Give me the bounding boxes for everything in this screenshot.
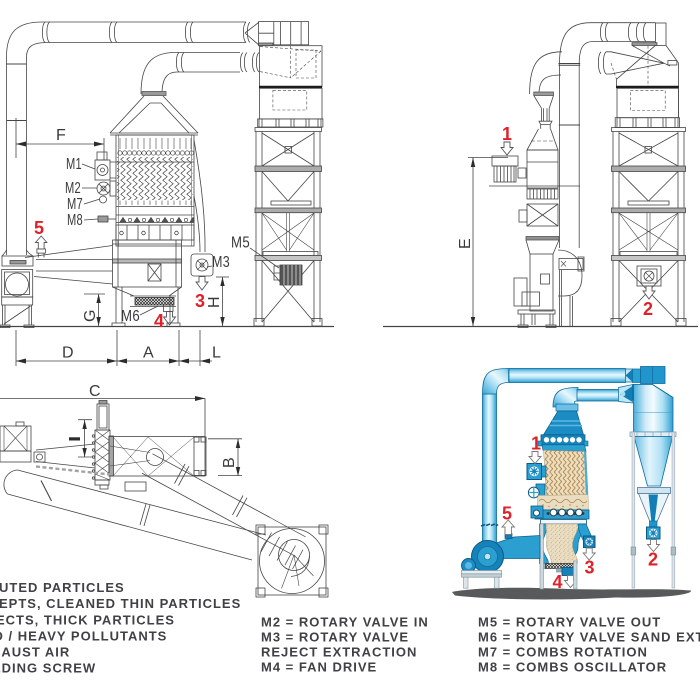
svg-text:M3: M3 [212,254,230,271]
svg-text:H: H [206,296,223,308]
svg-text:1: 1 [502,124,512,144]
svg-text:M6 = ROTARY VALVE SAND EXTRACT: M6 = ROTARY VALVE SAND EXTRACTION [478,630,700,645]
svg-text:EPTS, CLEANED THIN PARTICLES: EPTS, CLEANED THIN PARTICLES [0,596,241,611]
svg-text:REJECT EXTRACTION: REJECT EXTRACTION [261,645,417,660]
svg-text:D / HEAVY POLLUTANTS: D / HEAVY POLLUTANTS [0,628,167,643]
svg-text:M8 = COMBS OSCILLATOR: M8 = COMBS OSCILLATOR [478,660,667,675]
svg-text:3: 3 [585,558,595,578]
svg-text:M4 = FAN DRIVE: M4 = FAN DRIVE [261,660,377,675]
svg-text:5: 5 [34,218,44,238]
svg-text:UTED PARTICLES: UTED PARTICLES [0,580,125,595]
svg-text:4: 4 [154,311,164,331]
svg-text:2: 2 [648,550,658,570]
svg-text:L: L [212,345,221,362]
svg-text:4: 4 [553,572,563,592]
svg-text:EDING SCREW: EDING SCREW [0,661,96,676]
svg-text:ECTS, THICK PARTICLES: ECTS, THICK PARTICLES [0,612,175,627]
svg-text:M2 = ROTARY VALVE IN: M2 = ROTARY VALVE IN [261,615,429,630]
svg-text:A: A [143,345,154,362]
svg-text:F: F [56,127,66,144]
svg-text:M6: M6 [121,308,140,325]
svg-text:M5: M5 [231,235,250,252]
svg-text:M1: M1 [66,156,82,173]
svg-text:M5 = ROTARY VALVE OUT: M5 = ROTARY VALVE OUT [478,615,661,630]
svg-text:2: 2 [643,299,653,319]
svg-text:M8: M8 [67,212,83,229]
svg-text:5: 5 [502,504,512,524]
svg-text:1: 1 [531,434,541,454]
svg-text:C: C [89,383,101,400]
svg-text:E: E [457,238,474,249]
svg-text:G: G [82,309,99,322]
svg-text:M7: M7 [67,196,83,213]
svg-text:3: 3 [195,291,205,311]
svg-text:M3 = ROTARY VALVE: M3 = ROTARY VALVE [261,630,409,645]
svg-text:HAUST AIR: HAUST AIR [0,645,70,660]
svg-text:B: B [221,457,238,468]
svg-text:M2: M2 [65,180,81,197]
svg-text:M7 = COMBS ROTATION: M7 = COMBS ROTATION [478,645,648,660]
svg-text:D: D [62,345,74,362]
